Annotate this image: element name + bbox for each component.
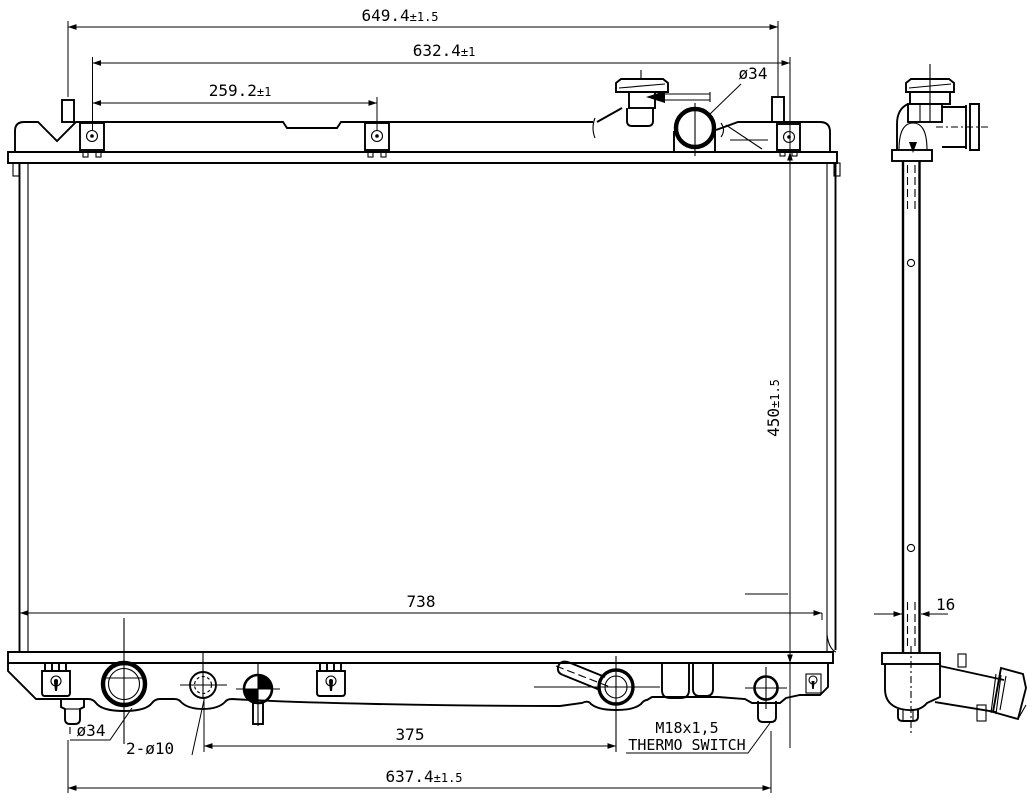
bottom-flange [8,652,833,663]
label-thermo-switch-spec: M18x1,5 [655,719,718,737]
core [13,163,840,652]
lower-bracket-right [806,674,821,693]
side-view [882,64,1026,735]
drain-hole-port [180,652,227,698]
tank-lobe [693,663,713,696]
side-bottom-tank [882,646,940,735]
front-view [8,70,840,752]
dim-overall-width-top: 649.4±1.5 [361,6,438,25]
flow-arrow-icon [909,142,917,153]
dim-mount-span: 632.4±1 [413,41,476,60]
top-flange [8,152,837,163]
drawing-sheet: 649.4±1.5 632.4±1 259.2±1 ø34 450±1.5 73… [0,0,1027,800]
drain-petcock [236,664,280,726]
dim-core-height: 450±1.5 [764,379,783,437]
side-core [892,150,932,652]
label-thermo-switch: THERMO SWITCH [628,736,745,754]
dimensions: 649.4±1.5 632.4±1 259.2±1 ø34 450±1.5 73… [20,6,955,793]
dim-core-thickness: 16 [936,595,955,614]
tank-lobe [662,663,689,698]
dim-overall-width-bottom: 637.4±1.5 [385,767,462,786]
dim-drain-holes: 2-ø10 [126,739,174,758]
dim-lower-pitch: 375 [396,725,425,744]
lower-bracket-middle [317,663,345,696]
leader-inlet-dia [710,84,741,114]
lower-bracket-left [42,663,70,696]
radiator-drawing: 649.4±1.5 632.4±1 259.2±1 ø34 450±1.5 73… [0,0,1027,800]
side-inlet-pipe [936,104,990,150]
side-outlet-pipe [935,654,1026,721]
left-pin [62,100,74,122]
dim-bracket-pitch: 259.2±1 [209,81,272,100]
dim-core-width: 738 [407,592,436,611]
right-pin [772,97,784,122]
dim-inlet-dia: ø34 [739,64,768,83]
side-filler-cap [897,64,954,153]
outlet-port [103,618,145,744]
thermo-switch-port [745,667,787,722]
filler-neck [616,70,724,156]
dim-outlet-dia: ø34 [77,721,106,740]
